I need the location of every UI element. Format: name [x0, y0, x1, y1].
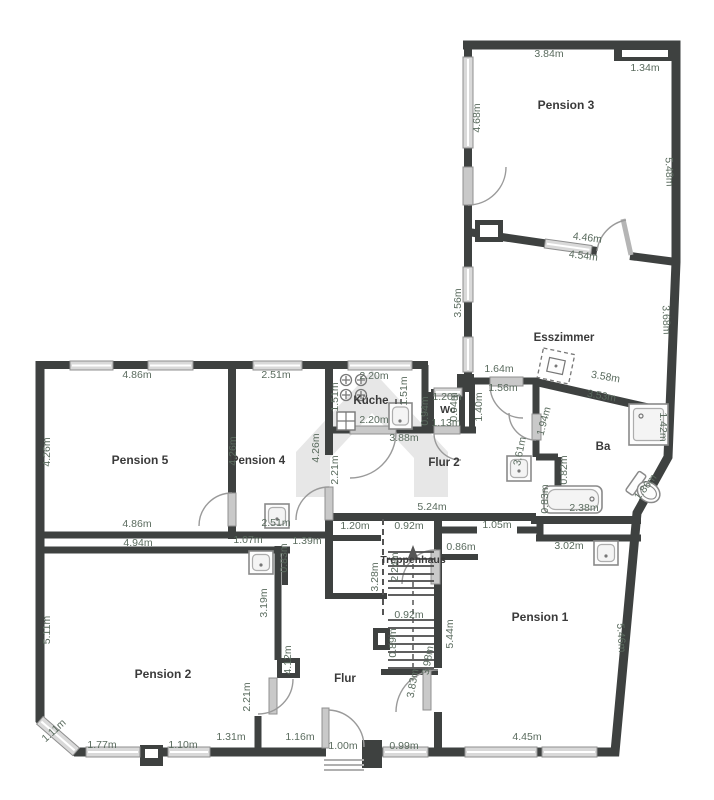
room-label-pension-4: Pension 4 [231, 455, 286, 467]
dimension-label: 1.16m [285, 731, 314, 743]
dimension-label: 3.84m [534, 48, 563, 60]
room-label-pension-5: Pension 5 [112, 453, 169, 467]
dimension-label: 1.64m [484, 363, 513, 375]
dimension-label: 0.83m [278, 543, 290, 572]
dimension-label: 0.92m [394, 609, 423, 621]
dimension-label: 3.19m [258, 588, 270, 617]
dimension-label: 4.26m [310, 433, 322, 462]
dimension-label: 1.51m [398, 376, 410, 405]
dimension-label: 1.39m [292, 535, 321, 547]
dimension-label: 3.02m [554, 540, 583, 552]
room-label-flur-2: Flur 2 [428, 457, 459, 469]
dimension-label: 1.34m [630, 62, 659, 74]
dimension-label: 5.48m [662, 157, 675, 187]
dimension-label: 2.21m [241, 682, 253, 711]
washbasin-icon [249, 551, 273, 574]
room-label-kueche: Küche [353, 395, 388, 407]
dimension-label: 2.20m [359, 414, 388, 426]
dimension-label: 0.89m [387, 628, 399, 657]
dimension-label: 2.20m [359, 370, 388, 382]
room-label-flur: Flur [334, 673, 356, 685]
dimension-label: 3.88m [389, 432, 418, 444]
dimension-label: 0.94m [448, 392, 460, 421]
dimension-label: 4.12m [282, 645, 294, 674]
dimension-label: 4.86m [122, 369, 151, 381]
windows [37, 57, 597, 757]
dimension-label: 1.77m [87, 739, 116, 751]
dimension-label: 1.42m [657, 412, 669, 441]
dimension-label: 2.24m [389, 552, 401, 581]
dimension-label: 0.92m [394, 520, 423, 532]
dimension-label: 4.68m [471, 103, 483, 132]
dimension-label: 0.86m [446, 541, 475, 553]
room-label-pension-3: Pension 3 [538, 98, 595, 112]
dimension-label: 4.94m [123, 537, 152, 549]
window-icon [148, 361, 193, 370]
door-icon [463, 167, 506, 205]
dimension-label: 4.26m [41, 437, 53, 466]
dimension-label: 0.83m [539, 484, 551, 513]
dimension-label: 1.07m [233, 534, 262, 546]
window-icon [465, 747, 537, 757]
dimension-label: 1.00m [328, 740, 357, 752]
floor-plan-page: Pension 3EsszimmerBaKücheWcFlur 2Treppen… [0, 0, 714, 800]
room-label-esszimmer: Esszimmer [534, 332, 595, 344]
room-label-pension-2: Pension 2 [135, 667, 192, 681]
dimension-label: 0.99m [389, 740, 418, 752]
dimension-label: 3.28m [369, 562, 381, 591]
dimension-label: 5.44m [444, 619, 456, 648]
dimension-label: 2.38m [569, 502, 598, 514]
door-icon [258, 678, 293, 714]
dimension-label: 1.51m [329, 382, 341, 411]
dimension-label: 2.51m [261, 517, 290, 529]
dimension-label: 3.58m [590, 369, 621, 386]
dimension-label: 3.56m [452, 288, 464, 317]
window-icon [542, 747, 597, 757]
dimension-label: 1.31m [216, 731, 245, 743]
dimension-label: 1.20m [340, 520, 369, 532]
dimension-label: 1.10m [168, 739, 197, 751]
dimension-label: 0.82m [558, 455, 570, 484]
window-icon [70, 361, 113, 370]
dimension-label: 2.51m [261, 369, 290, 381]
kitchen-window-grid-icon [337, 412, 355, 430]
floor-plan-canvas: Pension 3EsszimmerBaKücheWcFlur 2Treppen… [0, 0, 714, 800]
window-icon [463, 337, 473, 372]
dimension-label: 5.46m [614, 623, 628, 653]
dimension-label: 0.94m [419, 396, 431, 425]
dimension-label: 3.53m [586, 388, 617, 405]
dimension-label: 4.26m [227, 436, 239, 465]
dimension-label: 5.24m [417, 501, 446, 513]
door-icon [199, 493, 236, 526]
window-icon [463, 267, 473, 302]
entrance-steps-icon [324, 760, 364, 770]
dimension-label: 2.21m [329, 455, 341, 484]
dimension-label: 5.11m [41, 616, 53, 645]
room-label-ba: Ba [596, 441, 611, 453]
dimension-label: 1.05m [482, 519, 511, 531]
room-label-pension-1: Pension 1 [512, 610, 569, 624]
dimension-label: 4.54m [568, 248, 599, 263]
dimension-label: 3.68m [659, 305, 672, 335]
dimension-label: 4.45m [512, 731, 541, 743]
window-icon [463, 57, 473, 148]
table-icon [537, 348, 575, 384]
dimension-label: 1.40m [473, 392, 485, 421]
window-icon [348, 361, 412, 370]
dimension-label: 4.86m [122, 518, 151, 530]
dimension-label: 1.56m [488, 382, 517, 394]
washbasin-icon [594, 541, 618, 565]
